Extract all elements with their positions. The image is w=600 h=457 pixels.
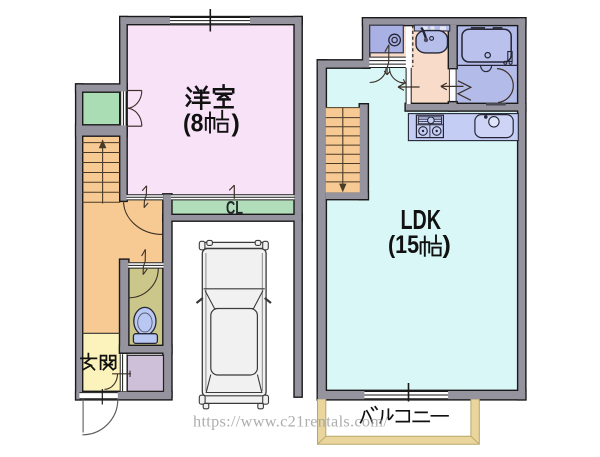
- svg-text:https://www.c21rentals.com/: https://www.c21rentals.com/: [193, 412, 388, 431]
- svg-text:(8: (8: [183, 110, 204, 138]
- svg-text:): ): [232, 110, 240, 138]
- svg-text:): ): [443, 231, 451, 259]
- svg-text:(15: (15: [388, 231, 419, 259]
- svg-text:CL: CL: [226, 198, 243, 218]
